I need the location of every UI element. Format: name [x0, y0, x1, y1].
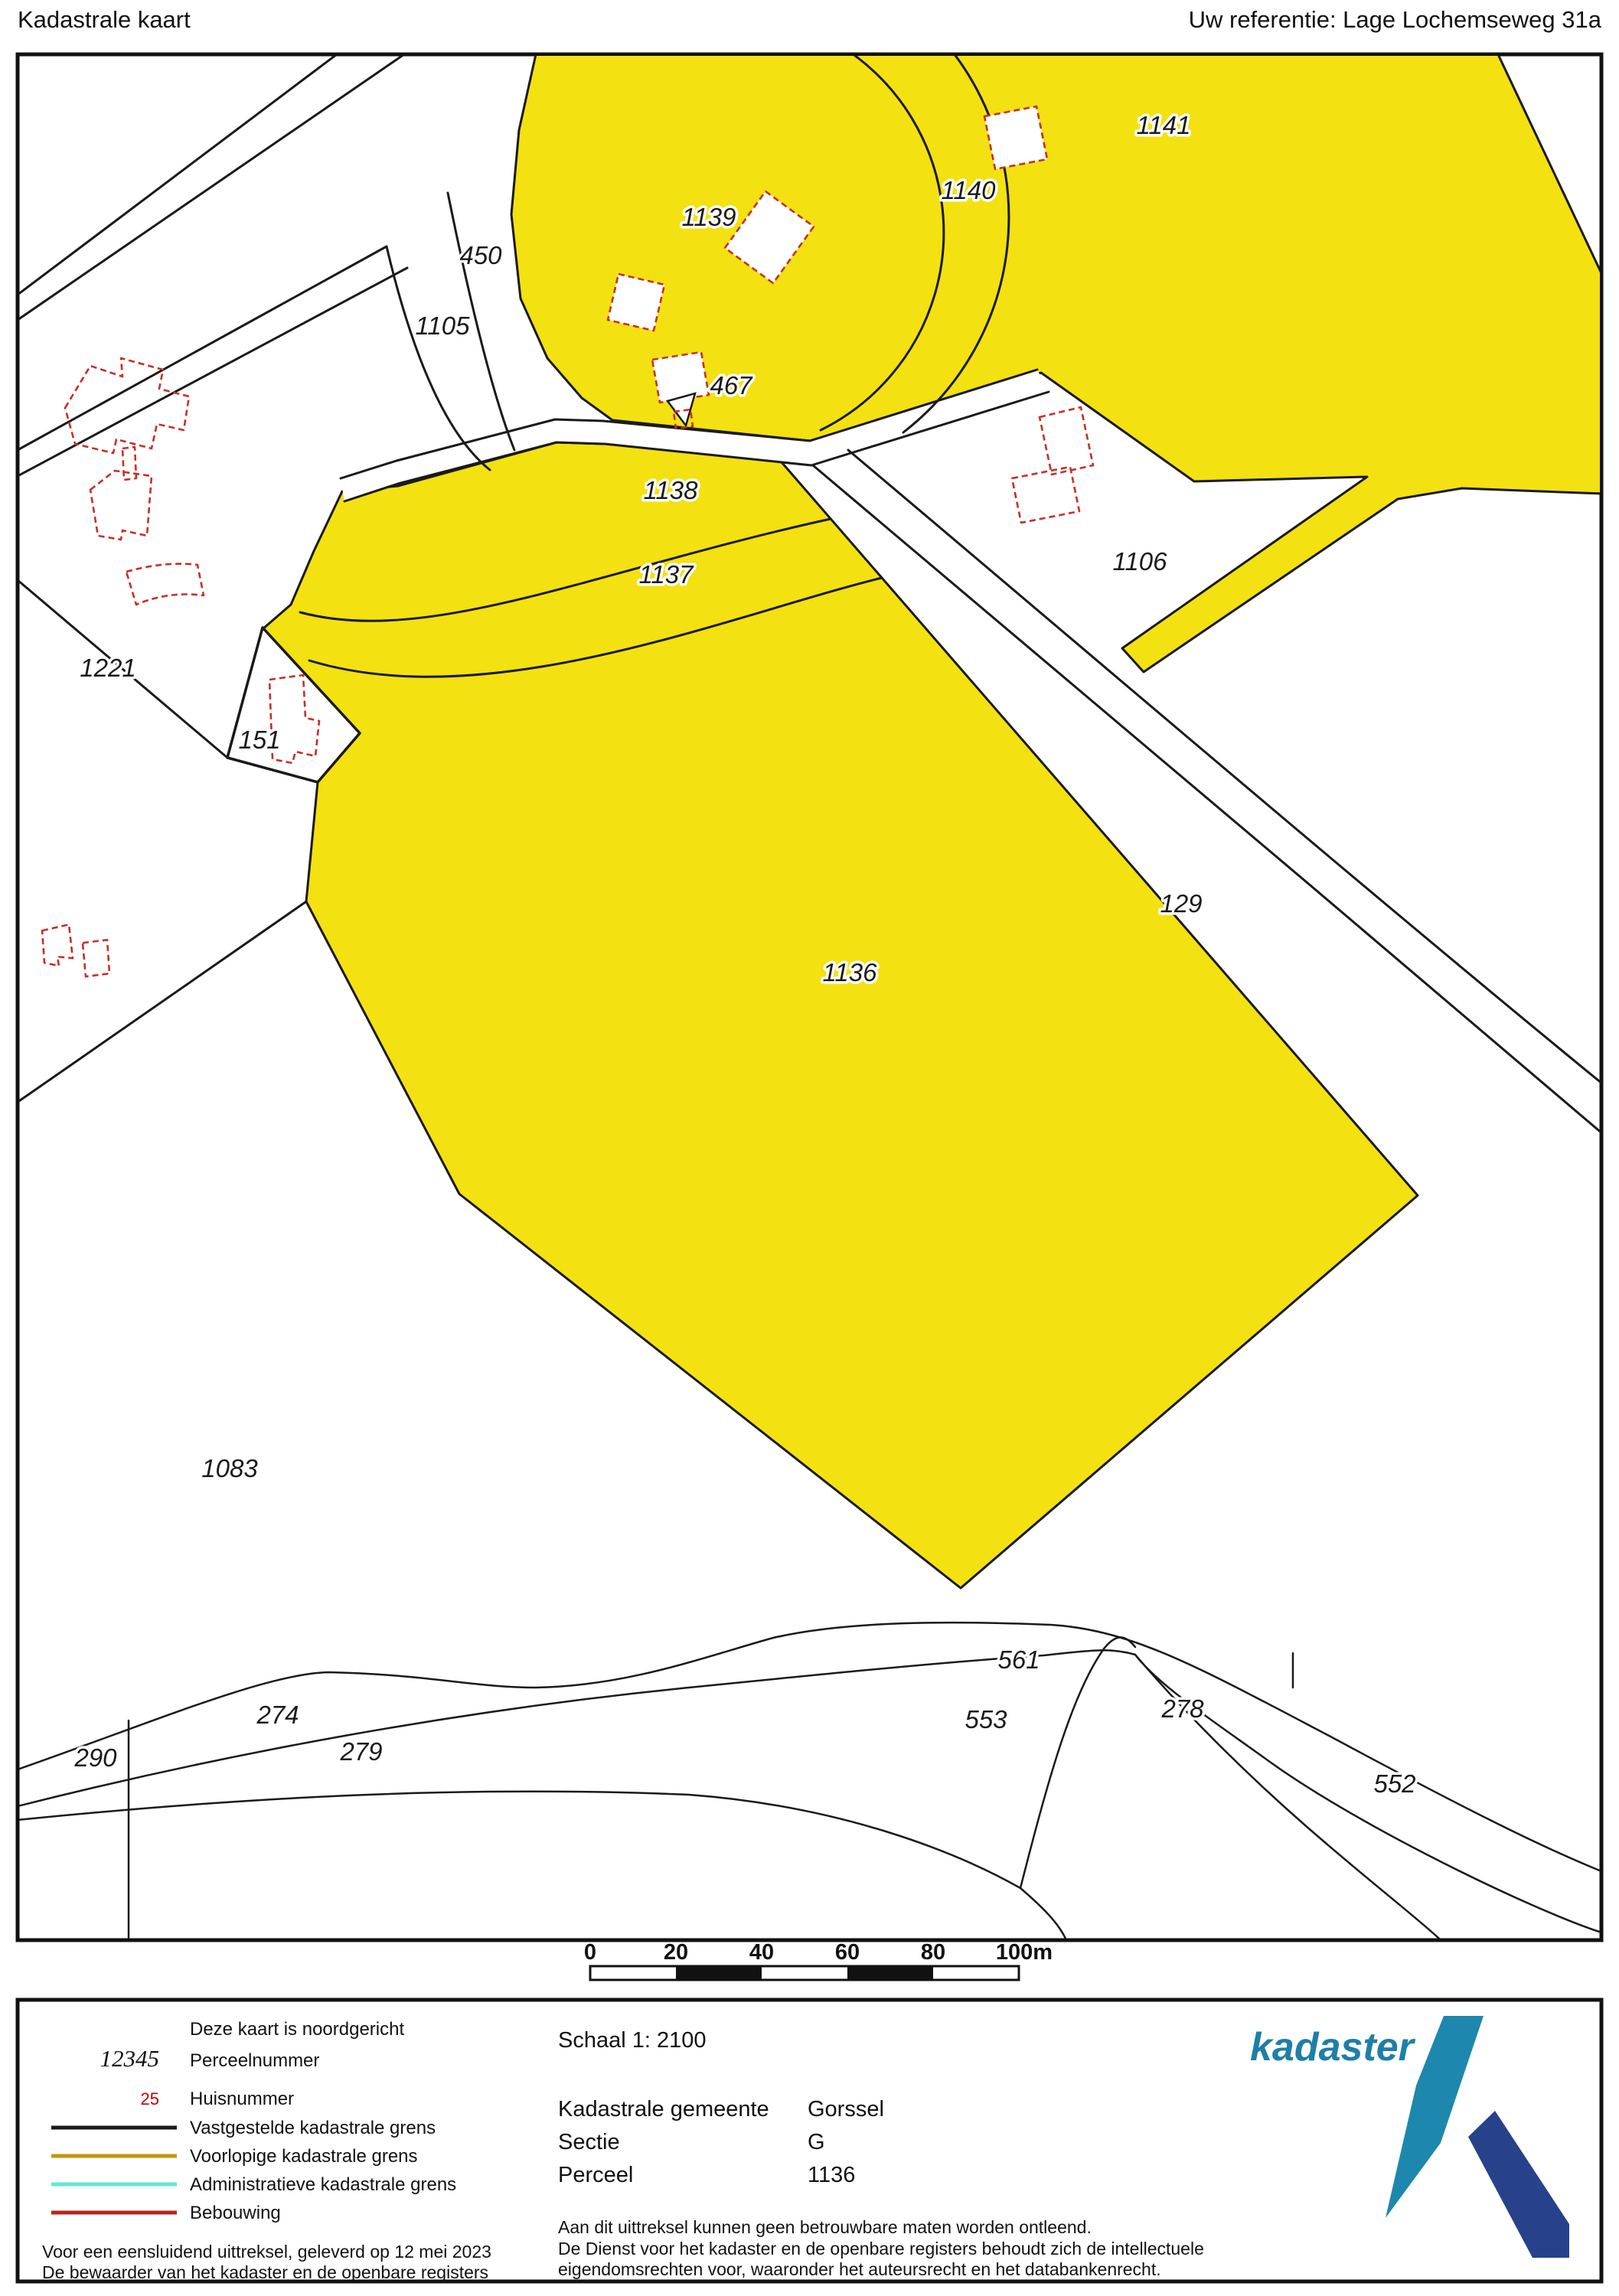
gemeente-label: Kadastrale gemeente: [558, 2097, 769, 2122]
building-467: [652, 352, 709, 403]
scale-seg-black2: [847, 1966, 933, 1980]
label-1141: 1141: [1137, 111, 1191, 139]
disclaimer-line2: De Dienst voor het kadaster en de openba…: [558, 2239, 1204, 2258]
gemeente-value: Gorssel: [808, 2097, 884, 2122]
disclaimer-line3: eigendomsrechten voor, waaronder het aut…: [558, 2259, 1161, 2279]
scale-tick-20: 20: [664, 1940, 688, 1965]
label-279: 279: [339, 1737, 382, 1766]
label-450: 450: [459, 241, 502, 269]
label-1083: 1083: [201, 1454, 258, 1482]
scale-tick-0: 0: [584, 1940, 596, 1965]
label-1106: 1106: [1113, 547, 1168, 576]
legend-line2-label: Voorlopige kadastrale grens: [190, 2146, 418, 2167]
legend-perceel-sample: 12345: [100, 2045, 160, 2072]
reference-text: Uw referentie: Lage Lochemseweg 31a: [1189, 6, 1602, 33]
building-1141: [984, 106, 1047, 169]
label-1140: 1140: [942, 176, 997, 204]
sectie-value: G: [808, 2130, 825, 2154]
label-467: 467: [710, 371, 753, 400]
page-title: Kadastrale kaart: [18, 6, 191, 33]
schaal-text: Schaal 1: 2100: [558, 2028, 706, 2053]
label-552: 552: [1373, 1769, 1415, 1798]
label-278: 278: [1160, 1694, 1204, 1723]
label-1139: 1139: [682, 203, 736, 231]
label-1105: 1105: [416, 311, 471, 340]
scale-tick-40: 40: [749, 1940, 774, 1965]
scale-bar-outline: [590, 1966, 1019, 1980]
label-290: 290: [73, 1743, 117, 1772]
footer-left-line1: Voor een eensluidend uittreksel, gelever…: [42, 2242, 491, 2262]
label-553: 553: [965, 1705, 1007, 1733]
kadaster-logo-text: kadaster: [1250, 2025, 1416, 2069]
label-1221: 1221: [80, 654, 135, 682]
label-151: 151: [238, 726, 280, 754]
legend-line3-label: Administratieve kadastrale grens: [190, 2174, 456, 2195]
scale-tick-60: 60: [835, 1940, 860, 1965]
footer-left-line2: De bewaarder van het kadaster en de open…: [42, 2262, 488, 2282]
label-1138: 1138: [644, 476, 699, 504]
perceel-value: 1136: [808, 2163, 855, 2187]
legend-line1-label: Vastgestelde kadastrale grens: [190, 2118, 436, 2138]
label-1137: 1137: [639, 560, 695, 589]
scale-tick-100m: 100m: [996, 1940, 1053, 1965]
scale-tick-80: 80: [921, 1940, 945, 1965]
scale-bar: 0 20 40 60 80 100m: [584, 1940, 1053, 1980]
cadastral-map-canvas: Kadastrale kaart Uw referentie: Lage Loc…: [0, 0, 1619, 2296]
label-1136: 1136: [823, 958, 878, 987]
legend-perceel-label: Perceelnummer: [190, 2050, 319, 2071]
legend-line4-label: Bebouwing: [190, 2203, 281, 2223]
sectie-label: Sectie: [558, 2130, 620, 2154]
label-561: 561: [997, 1645, 1040, 1674]
legend-north-note: Deze kaart is noordgericht: [190, 2019, 404, 2040]
legend-huis-label: Huisnummer: [190, 2089, 294, 2109]
cadastral-extract-page: Kadastrale kaart Uw referentie: Lage Loc…: [0, 0, 1619, 2296]
legend-huis-sample: 25: [141, 2089, 159, 2108]
perceel-label: Perceel: [558, 2163, 633, 2187]
label-274: 274: [256, 1701, 299, 1729]
scale-seg-black1: [676, 1966, 762, 1980]
label-129: 129: [1160, 889, 1202, 918]
disclaimer-line1: Aan dit uittreksel kunnen geen betrouwba…: [558, 2217, 1092, 2237]
